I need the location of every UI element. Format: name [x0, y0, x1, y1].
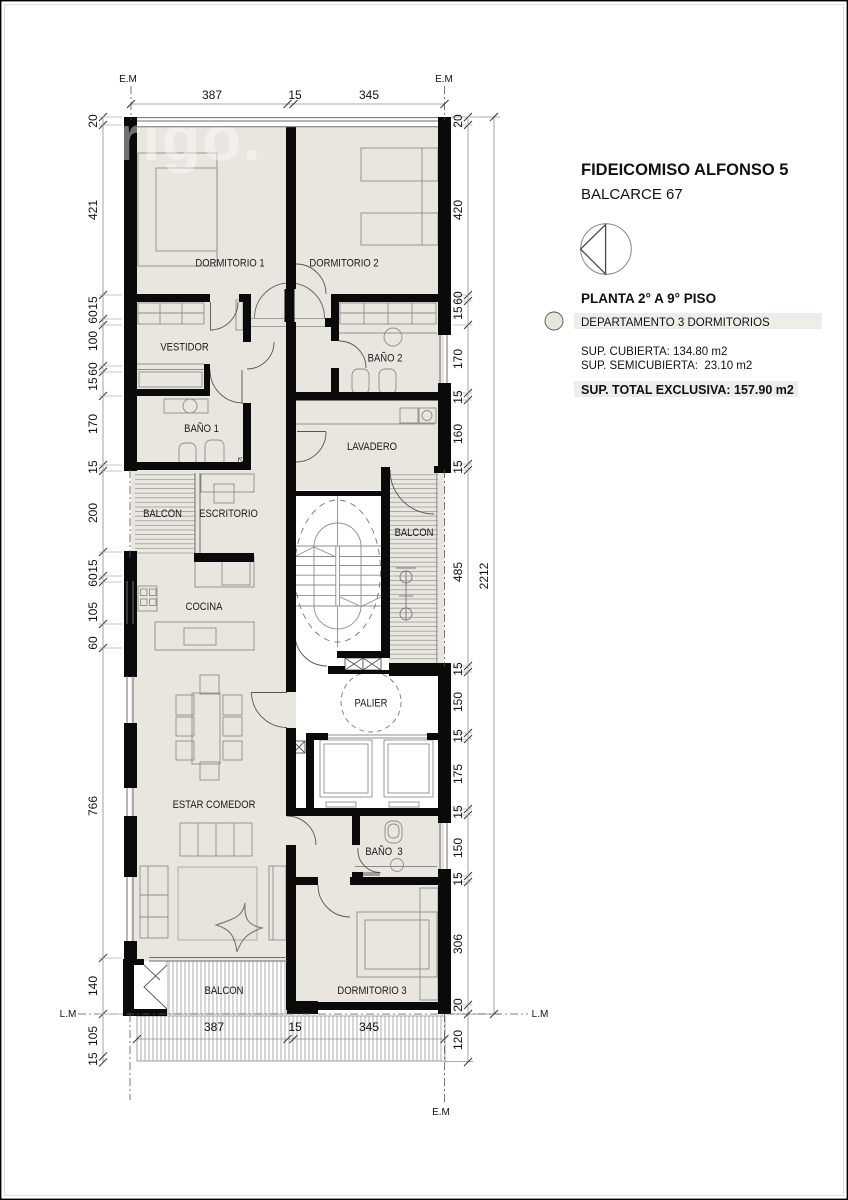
svg-text:170: 170	[86, 414, 100, 434]
svg-text:15: 15	[86, 559, 100, 573]
svg-text:20: 20	[86, 114, 100, 128]
svg-text:170: 170	[451, 349, 465, 369]
svg-text:20: 20	[451, 114, 465, 128]
svg-text:345: 345	[359, 1020, 379, 1034]
svg-text:FIDEICOMISO ALFONSO 5: FIDEICOMISO ALFONSO 5	[581, 161, 788, 179]
svg-text:766: 766	[86, 796, 100, 816]
svg-text:E.M: E.M	[119, 74, 137, 85]
svg-text:BALCON: BALCON	[205, 985, 244, 997]
svg-text:BALCON: BALCON	[143, 508, 182, 520]
svg-text:20: 20	[451, 998, 465, 1012]
svg-text:60: 60	[451, 291, 465, 305]
svg-text:15: 15	[86, 296, 100, 310]
svg-text:160: 160	[451, 424, 465, 444]
svg-text:15: 15	[451, 306, 465, 320]
svg-text:PALIER: PALIER	[355, 698, 388, 710]
svg-text:150: 150	[451, 692, 465, 712]
svg-text:15: 15	[451, 872, 465, 886]
svg-text:BAÑO 2: BAÑO 2	[368, 351, 403, 365]
svg-text:LAVADERO: LAVADERO	[347, 441, 397, 453]
svg-text:420: 420	[451, 200, 465, 220]
svg-text:15: 15	[451, 729, 465, 743]
svg-text:DORMITORIO 2: DORMITORIO 2	[309, 258, 378, 270]
svg-text:485: 485	[451, 562, 465, 582]
svg-text:15: 15	[451, 460, 465, 474]
svg-text:60: 60	[86, 310, 100, 324]
svg-text:2212: 2212	[477, 562, 491, 589]
svg-text:ESCRITORIO: ESCRITORIO	[199, 508, 258, 520]
svg-text:SUP. CUBIERTA: 134.80 m2: SUP. CUBIERTA: 134.80 m2	[581, 346, 727, 358]
svg-text:L.M: L.M	[60, 1009, 77, 1020]
svg-text:BAÑO 1: BAÑO 1	[184, 421, 219, 435]
svg-text:140: 140	[86, 976, 100, 996]
svg-text:100: 100	[86, 331, 100, 351]
svg-text:15: 15	[288, 1020, 302, 1034]
svg-text:BALCARCE 67: BALCARCE 67	[581, 186, 683, 203]
svg-text:345: 345	[359, 88, 379, 102]
svg-text:DORMITORIO 3: DORMITORIO 3	[337, 985, 406, 997]
svg-text:SUP. SEMICUBIERTA: 23.10 m2: SUP. SEMICUBIERTA: 23.10 m2	[581, 360, 752, 372]
svg-text:ESTAR COMEDOR: ESTAR COMEDOR	[173, 799, 256, 811]
svg-text:60: 60	[86, 362, 100, 376]
svg-text:DEPARTAMENTO 3 DORMITORIOS: DEPARTAMENTO 3 DORMITORIOS	[581, 317, 770, 329]
svg-text:387: 387	[202, 88, 222, 102]
svg-text:15: 15	[288, 88, 302, 102]
svg-text:L.M: L.M	[532, 1009, 549, 1020]
svg-text:120: 120	[451, 1030, 465, 1050]
svg-text:PLANTA 2° A 9° PISO: PLANTA 2° A 9° PISO	[581, 291, 716, 306]
svg-text:150: 150	[451, 838, 465, 858]
svg-text:E.M: E.M	[432, 1107, 450, 1118]
svg-text:15: 15	[451, 662, 465, 676]
svg-text:BALCON: BALCON	[395, 527, 434, 539]
svg-text:387: 387	[204, 1020, 224, 1034]
svg-text:15: 15	[451, 390, 465, 404]
svg-text:60: 60	[86, 573, 100, 587]
svg-text:SUP. TOTAL EXCLUSIVA: 157.90 m: SUP. TOTAL EXCLUSIVA: 157.90 m2	[581, 383, 794, 397]
svg-text:200: 200	[86, 503, 100, 523]
svg-text:306: 306	[451, 934, 465, 954]
svg-text:421: 421	[86, 200, 100, 220]
svg-text:rigo.: rigo.	[116, 102, 262, 174]
svg-text:175: 175	[451, 764, 465, 784]
svg-text:15: 15	[86, 460, 100, 474]
svg-text:E.M: E.M	[435, 74, 453, 85]
svg-text:15: 15	[86, 377, 100, 391]
svg-text:DORMITORIO 1: DORMITORIO 1	[195, 258, 264, 270]
svg-text:BAÑO 3: BAÑO 3	[365, 844, 403, 858]
svg-text:15: 15	[86, 1052, 100, 1066]
svg-text:105: 105	[86, 602, 100, 622]
svg-text:60: 60	[86, 636, 100, 650]
svg-text:VESTIDOR: VESTIDOR	[160, 342, 208, 354]
svg-text:COCINA: COCINA	[186, 601, 223, 613]
svg-text:105: 105	[86, 1026, 100, 1046]
svg-text:15: 15	[451, 805, 465, 819]
